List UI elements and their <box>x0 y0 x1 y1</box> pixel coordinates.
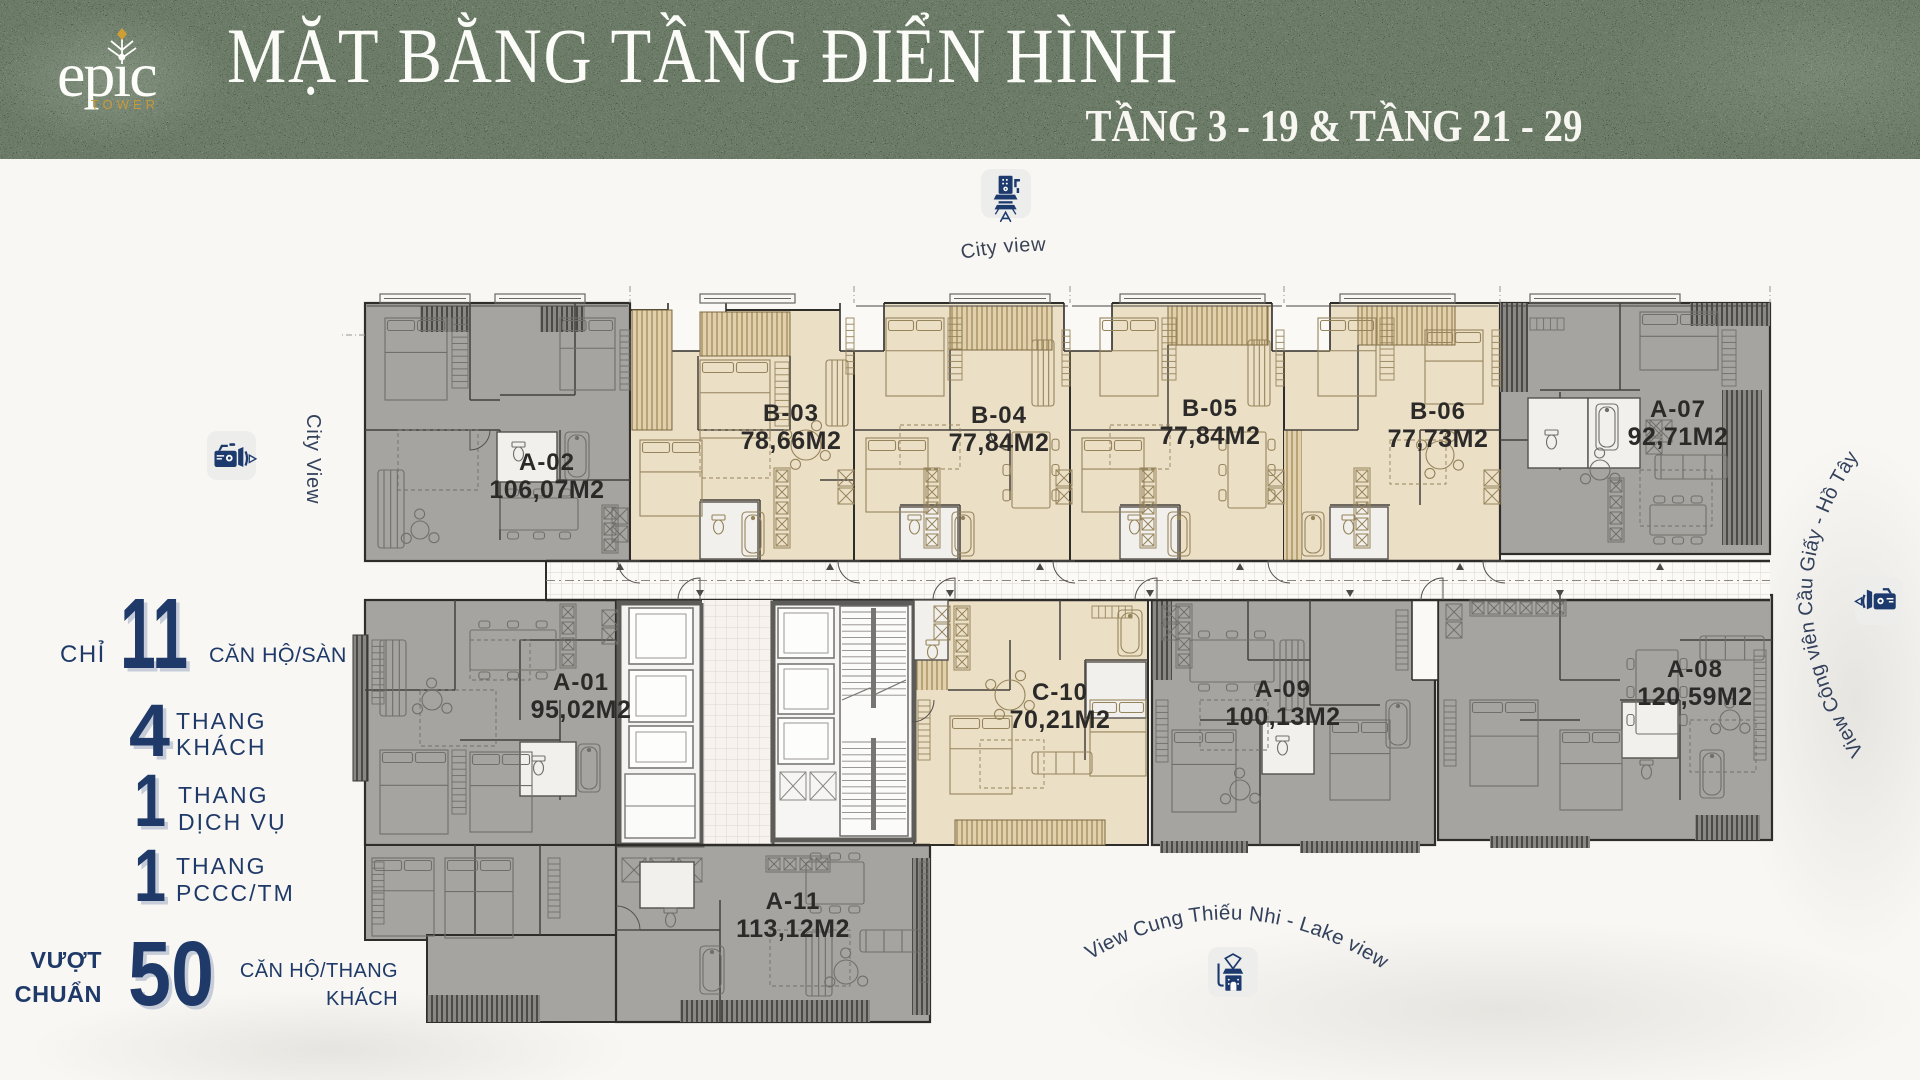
svg-text:1: 1 <box>134 759 166 842</box>
svg-text:PCCC/TM: PCCC/TM <box>176 880 295 906</box>
svg-text:CĂN HỘ/THANG: CĂN HỘ/THANG <box>240 959 398 982</box>
svg-text:120,59M2: 120,59M2 <box>1637 683 1752 711</box>
svg-text:B-03: B-03 <box>763 400 819 427</box>
svg-text:106,07M2: 106,07M2 <box>489 476 604 504</box>
svg-text:78,66M2: 78,66M2 <box>741 427 842 455</box>
svg-text:A-08: A-08 <box>1667 656 1723 683</box>
svg-text:C-10: C-10 <box>1032 679 1088 706</box>
svg-text:CHỈ: CHỈ <box>60 639 106 668</box>
svg-text:11: 11 <box>120 578 188 690</box>
svg-text:B-06: B-06 <box>1410 398 1466 425</box>
svg-text:THANG: THANG <box>176 853 267 879</box>
svg-text:City View: City View <box>302 414 324 504</box>
svg-text:92,71M2: 92,71M2 <box>1628 423 1729 451</box>
svg-text:A-09: A-09 <box>1255 676 1311 703</box>
svg-text:77,84M2: 77,84M2 <box>949 429 1050 457</box>
svg-text:77,84M2: 77,84M2 <box>1160 422 1261 450</box>
svg-text:KHÁCH: KHÁCH <box>326 987 398 1010</box>
svg-text:CHUẨN: CHUẨN <box>15 980 102 1007</box>
svg-text:50: 50 <box>128 923 214 1025</box>
svg-text:THANG: THANG <box>178 782 269 808</box>
svg-text:B-05: B-05 <box>1182 395 1238 422</box>
svg-text:TOWER: TOWER <box>91 97 159 112</box>
svg-text:TẦNG 3 - 19 & TẦNG 21 - 29: TẦNG 3 - 19 & TẦNG 21 - 29 <box>1086 101 1583 151</box>
svg-text:VƯỢT: VƯỢT <box>30 947 102 973</box>
svg-text:113,12M2: 113,12M2 <box>736 915 850 943</box>
svg-text:1: 1 <box>134 834 166 917</box>
svg-text:KHÁCH: KHÁCH <box>176 734 267 760</box>
svg-text:B-04: B-04 <box>971 402 1027 429</box>
svg-text:77,73M2: 77,73M2 <box>1388 425 1489 453</box>
svg-text:A-01: A-01 <box>553 669 609 696</box>
svg-text:THANG: THANG <box>176 708 267 734</box>
svg-text:DỊCH VỤ: DỊCH VỤ <box>178 809 287 835</box>
svg-text:MẶT BẰNG TẦNG ĐIỂN HÌNH: MẶT BẰNG TẦNG ĐIỂN HÌNH <box>227 12 1179 99</box>
svg-text:A-07: A-07 <box>1650 396 1706 423</box>
svg-text:A-11: A-11 <box>766 888 821 915</box>
svg-text:CĂN HỘ/SÀN: CĂN HỘ/SÀN <box>209 642 347 667</box>
svg-text:70,21M2: 70,21M2 <box>1010 706 1111 734</box>
svg-text:95,02M2: 95,02M2 <box>531 696 632 724</box>
svg-text:100,13M2: 100,13M2 <box>1225 703 1340 731</box>
svg-text:A-02: A-02 <box>519 449 575 476</box>
